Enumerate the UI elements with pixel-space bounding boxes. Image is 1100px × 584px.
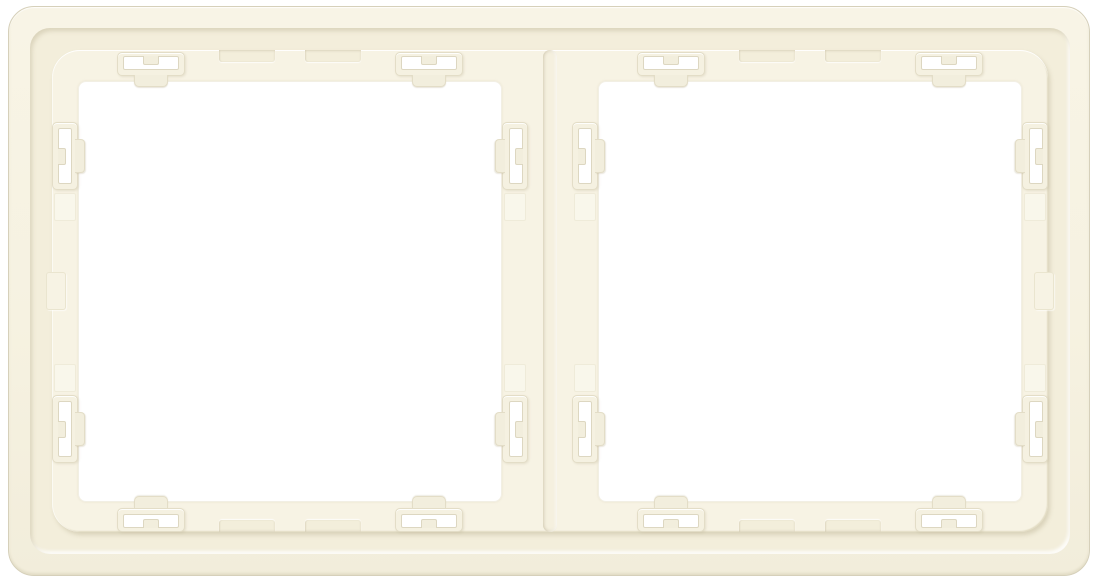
latch-tab	[654, 496, 688, 508]
clip-step-mark	[504, 364, 526, 392]
latch-tab	[495, 139, 505, 173]
latch-tab	[932, 75, 966, 87]
clip-step-mark	[574, 193, 596, 221]
latch-tab	[1015, 412, 1025, 446]
edge-notch-icon	[305, 50, 361, 62]
latch-clip-top	[395, 52, 463, 76]
latch-notch	[421, 519, 437, 528]
latch-notch	[663, 519, 679, 528]
latch-slot	[578, 128, 592, 184]
latch-slot	[123, 514, 179, 528]
clip-step-mark	[1024, 364, 1046, 392]
latch-notch	[515, 421, 523, 438]
module-opening	[78, 81, 502, 502]
edge-notch-icon	[219, 50, 275, 62]
latch-slot	[58, 401, 72, 457]
latch-slot	[1029, 401, 1043, 457]
edge-notch-icon	[305, 520, 361, 532]
clip-step-mark	[1024, 193, 1046, 221]
latch-tab	[134, 75, 168, 87]
latch-clip-top	[637, 52, 705, 76]
edge-notch-icon	[825, 50, 881, 62]
latch-notch	[941, 519, 957, 528]
latch-tab	[134, 496, 168, 508]
edge-bump-icon	[46, 272, 66, 310]
latch-tab	[595, 412, 605, 446]
edge-notch-icon	[739, 50, 795, 62]
latch-tab	[654, 75, 688, 87]
latch-clip-top	[915, 52, 983, 76]
gang-layer	[0, 0, 1100, 584]
latch-clip-bottom	[395, 508, 463, 532]
latch-slot	[509, 401, 523, 457]
latch-clip-right	[502, 122, 528, 190]
latch-tab	[412, 75, 446, 87]
latch-clip-top	[117, 52, 185, 76]
latch-slot	[58, 128, 72, 184]
clip-step-mark	[54, 193, 76, 221]
module-opening	[598, 81, 1022, 502]
latch-notch	[578, 148, 586, 165]
latch-notch	[941, 56, 957, 65]
latch-notch	[143, 56, 159, 65]
latch-tab	[75, 139, 85, 173]
latch-tab	[495, 412, 505, 446]
latch-notch	[663, 56, 679, 65]
latch-slot	[921, 514, 977, 528]
latch-clip-right	[502, 395, 528, 463]
edge-notch-icon	[739, 520, 795, 532]
latch-notch	[1035, 421, 1043, 438]
latch-tab	[595, 139, 605, 173]
latch-tab	[932, 496, 966, 508]
switch-frame-product-photo	[0, 0, 1100, 584]
latch-notch	[1035, 148, 1043, 165]
latch-clip-right	[1022, 122, 1048, 190]
latch-tab	[1015, 139, 1025, 173]
latch-slot	[123, 56, 179, 70]
clip-step-mark	[574, 364, 596, 392]
latch-clip-bottom	[915, 508, 983, 532]
clip-step-mark	[504, 193, 526, 221]
edge-bump-icon	[1034, 272, 1054, 310]
latch-slot	[643, 514, 699, 528]
latch-notch	[58, 421, 66, 438]
latch-notch	[421, 56, 437, 65]
latch-tab	[412, 496, 446, 508]
latch-notch	[143, 519, 159, 528]
edge-notch-icon	[219, 520, 275, 532]
latch-slot	[921, 56, 977, 70]
clip-step-mark	[54, 364, 76, 392]
latch-slot	[401, 514, 457, 528]
latch-notch	[58, 148, 66, 165]
latch-clip-right	[1022, 395, 1048, 463]
latch-notch	[578, 421, 586, 438]
latch-notch	[515, 148, 523, 165]
latch-clip-bottom	[117, 508, 185, 532]
latch-slot	[401, 56, 457, 70]
latch-slot	[578, 401, 592, 457]
edge-notch-icon	[825, 520, 881, 532]
latch-tab	[75, 412, 85, 446]
latch-slot	[643, 56, 699, 70]
latch-slot	[509, 128, 523, 184]
latch-slot	[1029, 128, 1043, 184]
latch-clip-bottom	[637, 508, 705, 532]
